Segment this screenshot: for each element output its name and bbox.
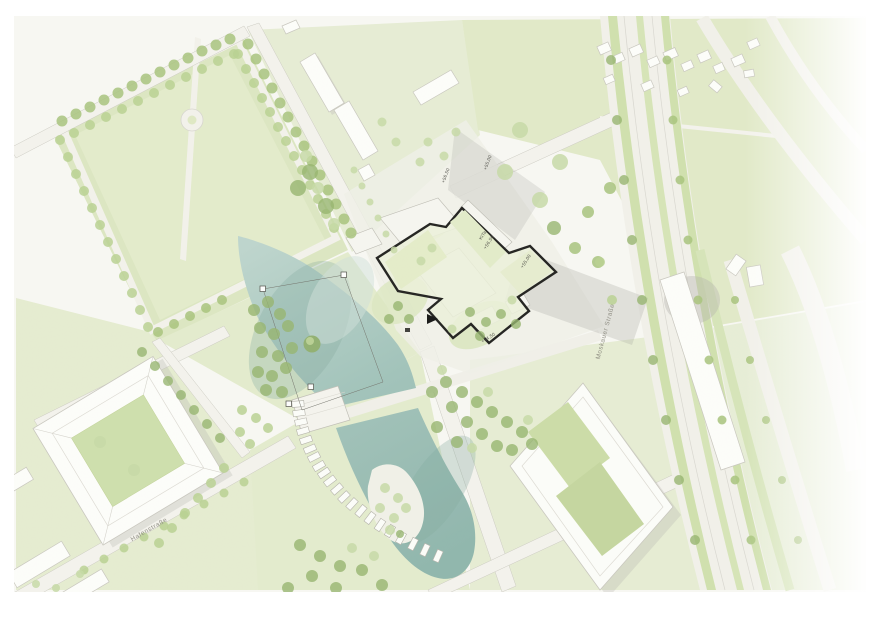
watercolor-grain xyxy=(14,16,866,592)
site-plan-frame: Hafenstraße Moskauer Straße +56,50 +55,0… xyxy=(0,0,880,621)
edge-fade xyxy=(740,0,880,621)
site-plan-canvas: Hafenstraße Moskauer Straße +56,50 +55,0… xyxy=(0,0,880,621)
